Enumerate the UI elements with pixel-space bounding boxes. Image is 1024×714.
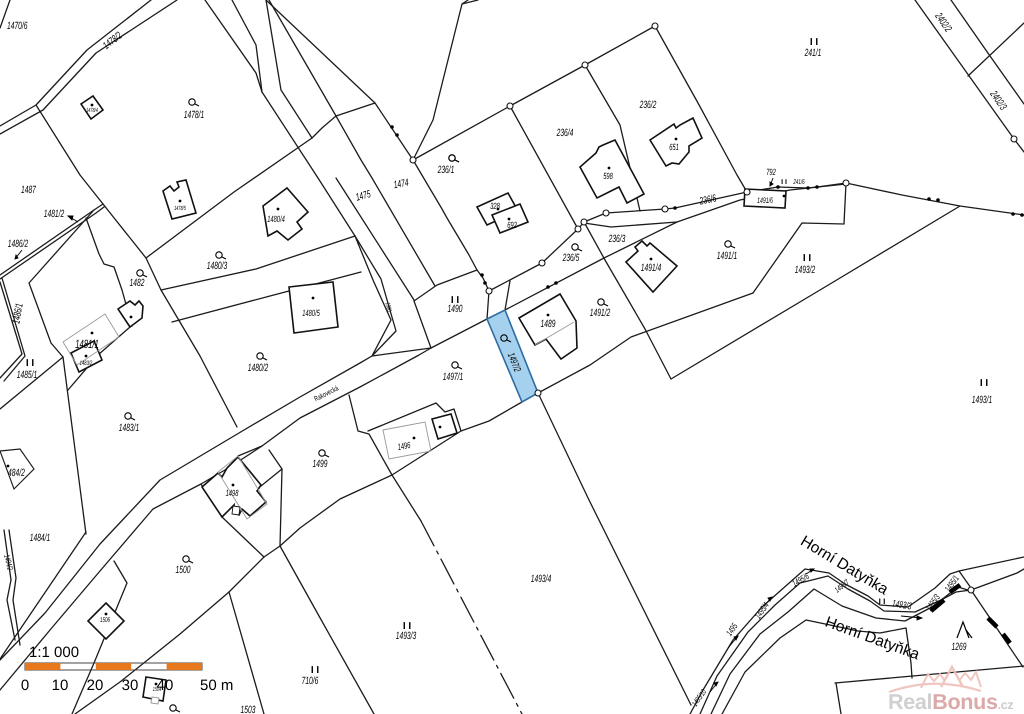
svg-text:1487: 1487 — [21, 184, 37, 196]
svg-text:I I: I I — [980, 378, 989, 389]
svg-text:I I: I I — [311, 665, 320, 676]
svg-text:I I: I I — [451, 295, 460, 306]
svg-text:236/3: 236/3 — [608, 233, 626, 245]
svg-text:1489: 1489 — [541, 318, 556, 330]
svg-text:1481/1: 1481/1 — [75, 337, 99, 351]
svg-text:236/2: 236/2 — [639, 99, 657, 111]
svg-text:1493/2: 1493/2 — [795, 264, 816, 276]
svg-text:I I: I I — [781, 179, 787, 186]
svg-text:710/6: 710/6 — [302, 675, 319, 687]
svg-text:241/6: 241/6 — [793, 178, 805, 186]
svg-text:1269: 1269 — [952, 641, 967, 653]
svg-text:10: 10 — [52, 677, 69, 694]
svg-text:241/1: 241/1 — [804, 47, 821, 59]
svg-text:1493/4: 1493/4 — [531, 573, 552, 585]
svg-text:I I: I I — [803, 253, 812, 264]
svg-text:1506: 1506 — [100, 617, 110, 624]
svg-text:1483/1: 1483/1 — [119, 422, 140, 434]
svg-text:236/1: 236/1 — [437, 164, 454, 176]
svg-text:1480/2: 1480/2 — [248, 362, 269, 374]
svg-text:1478/5: 1478/5 — [174, 205, 186, 212]
svg-text:1483/2: 1483/2 — [80, 360, 93, 367]
svg-text:1478/4: 1478/4 — [86, 107, 98, 114]
svg-text:1481/2: 1481/2 — [44, 208, 65, 220]
svg-text:20: 20 — [87, 677, 104, 694]
svg-text:1474: 1474 — [393, 177, 410, 191]
svg-text:236/5: 236/5 — [562, 252, 580, 264]
svg-text:651: 651 — [669, 142, 679, 152]
svg-text:1470/6: 1470/6 — [7, 20, 28, 32]
svg-text:1491/6: 1491/6 — [757, 196, 773, 205]
svg-text:50 m: 50 m — [200, 677, 233, 694]
svg-text:1493/1: 1493/1 — [972, 394, 993, 406]
svg-text:1:1 000: 1:1 000 — [29, 644, 79, 661]
svg-text:0: 0 — [21, 677, 29, 694]
svg-text:792: 792 — [766, 167, 776, 177]
svg-text:1478/1: 1478/1 — [184, 109, 205, 121]
svg-text:1500: 1500 — [176, 564, 191, 576]
svg-text:1503: 1503 — [241, 704, 256, 714]
svg-text:1485/1: 1485/1 — [17, 369, 38, 381]
svg-text:1497/1: 1497/1 — [443, 371, 464, 383]
svg-text:1480/5: 1480/5 — [302, 308, 320, 318]
svg-text:1484/1: 1484/1 — [30, 532, 51, 544]
svg-text:I I: I I — [810, 37, 819, 48]
svg-text:RealBonus.cz: RealBonus.cz — [888, 690, 1013, 714]
svg-text:328: 328 — [490, 201, 500, 211]
svg-text:598: 598 — [603, 171, 613, 181]
svg-text:1480/4: 1480/4 — [267, 214, 285, 224]
svg-text:1491/2: 1491/2 — [590, 307, 611, 319]
svg-text:484/2: 484/2 — [8, 467, 25, 479]
svg-text:30: 30 — [122, 677, 139, 694]
svg-text:236/4: 236/4 — [556, 127, 574, 139]
svg-text:1499: 1499 — [313, 458, 328, 470]
svg-text:1480/3: 1480/3 — [207, 260, 228, 272]
svg-text:I I: I I — [879, 597, 886, 606]
svg-text:I I: I I — [403, 621, 412, 632]
svg-text:40: 40 — [157, 677, 174, 694]
svg-text:1482: 1482 — [130, 277, 145, 289]
svg-text:692: 692 — [507, 220, 517, 230]
svg-text:1498: 1498 — [226, 488, 239, 498]
svg-text:1491/1: 1491/1 — [717, 250, 738, 262]
svg-text:1491/4: 1491/4 — [641, 262, 662, 274]
svg-text:1486/2: 1486/2 — [8, 238, 29, 250]
svg-text:I I: I I — [26, 358, 35, 369]
